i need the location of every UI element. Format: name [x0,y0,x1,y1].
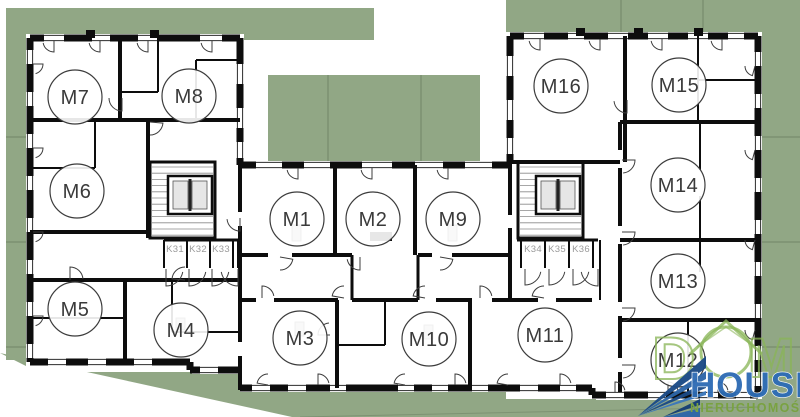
svg-text:M13: M13 [658,271,698,293]
svg-text:M8: M8 [175,86,204,108]
storage-label-K33: K33 [212,244,230,255]
storage-label-K32: K32 [189,244,207,255]
svg-text:M9: M9 [439,209,468,231]
svg-text:M6: M6 [63,181,92,203]
apartment-label-M5: M5 [48,282,102,336]
floor-plan: M7M8M6M5M4M1M2M9M3M10M11M16M15M14M13M12K… [0,0,800,417]
elevator-icon [536,176,580,214]
apartment-label-M1: M1 [270,192,324,246]
apartment-label-M14: M14 [651,158,705,212]
svg-text:M16: M16 [541,76,581,98]
storage-label-K36: K36 [572,244,590,255]
floor-plan-image: M7M8M6M5M4M1M2M9M3M10M11M16M15M14M13M12K… [0,0,800,417]
storage-label-K34: K34 [524,244,542,255]
svg-text:M2: M2 [359,209,388,231]
storage-label-K31: K31 [166,244,184,255]
apartment-label-M3: M3 [273,311,327,365]
svg-text:M4: M4 [167,320,196,342]
svg-text:M3: M3 [286,328,315,350]
logo-tagline: NIERUCHOMOŚCI [690,400,800,415]
apartment-label-M10: M10 [402,312,456,366]
apartment-label-M16: M16 [534,59,588,113]
apartment-label-M9: M9 [426,192,480,246]
apartment-label-M15: M15 [652,58,706,112]
elevator-icon [168,176,212,214]
apartment-label-M8: M8 [162,69,216,123]
apartment-label-M4: M4 [154,303,208,357]
house-wordmark: HOUSE [690,366,800,405]
svg-text:M10: M10 [409,329,449,351]
svg-text:M15: M15 [659,75,699,97]
dom-letter-d: D [652,325,695,392]
apartment-label-M11: M11 [518,308,572,362]
svg-text:M11: M11 [526,325,565,347]
svg-text:M5: M5 [61,299,90,321]
apartment-label-M6: M6 [50,164,104,218]
apartment-label-M7: M7 [48,70,102,124]
apartment-label-M13: M13 [651,254,705,308]
storage-label-K35: K35 [548,244,566,255]
svg-text:M14: M14 [658,175,698,197]
apartment-label-M2: M2 [346,192,400,246]
svg-text:M7: M7 [61,87,90,109]
svg-text:M1: M1 [283,209,312,231]
